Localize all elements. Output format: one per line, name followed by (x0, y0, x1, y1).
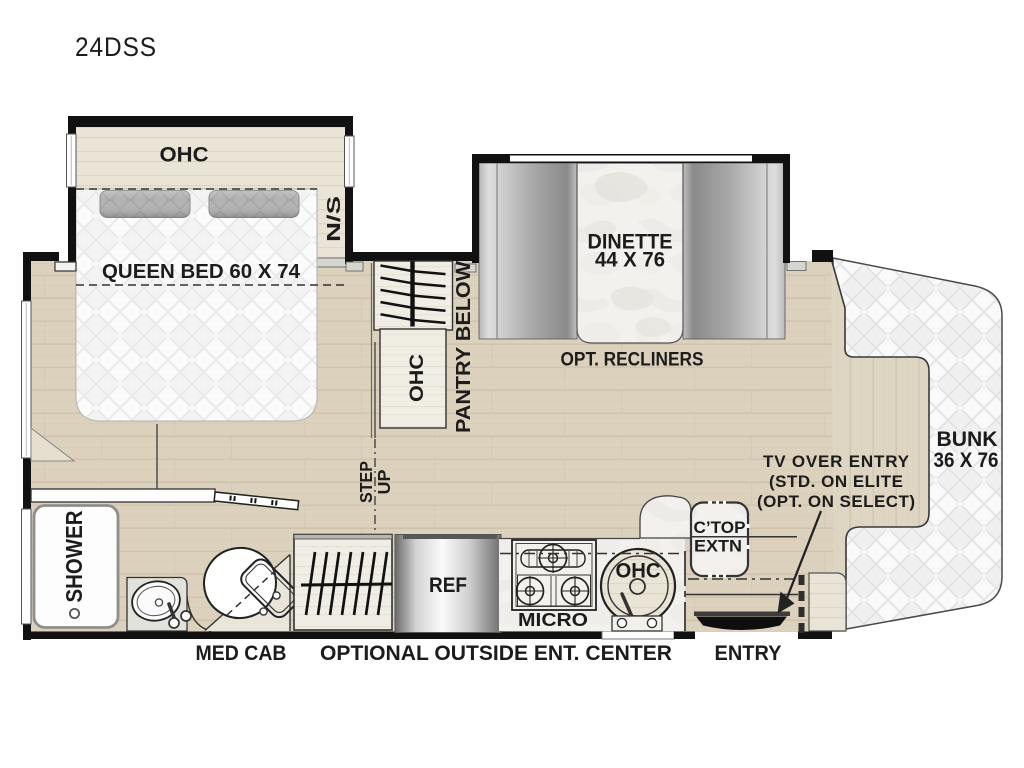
svg-text:BUNK: BUNK (937, 428, 998, 451)
svg-text:TV OVER ENTRY: TV OVER ENTRY (763, 452, 910, 471)
svg-text:N/S: N/S (324, 196, 344, 242)
svg-text:STEP: STEP (356, 461, 376, 503)
svg-text:OPTIONAL OUTSIDE ENT. CENTER: OPTIONAL OUTSIDE ENT. CENTER (320, 642, 672, 665)
svg-text:EXTN: EXTN (694, 537, 742, 556)
svg-text:QUEEN BED 60 X 74: QUEEN BED 60 X 74 (102, 261, 301, 283)
svg-text:REF: REF (429, 573, 467, 597)
svg-text:OHC: OHC (616, 560, 661, 583)
svg-text:C’TOP: C’TOP (694, 518, 746, 537)
svg-text:PANTRY BELOW: PANTRY BELOW (453, 261, 475, 433)
svg-text:(OPT. ON SELECT): (OPT. ON SELECT) (757, 492, 915, 511)
svg-text:44 X 76: 44 X 76 (595, 249, 665, 272)
svg-text:OHC: OHC (407, 354, 428, 402)
svg-text:MICRO: MICRO (518, 609, 588, 630)
svg-text:MED CAB: MED CAB (196, 642, 287, 665)
svg-text:OHC: OHC (160, 144, 209, 167)
svg-text:(STD. ON ELITE: (STD. ON ELITE (769, 472, 903, 491)
svg-text:UP: UP (374, 469, 394, 494)
svg-text:24DSS: 24DSS (75, 32, 157, 62)
svg-text:ENTRY: ENTRY (715, 642, 782, 665)
svg-text:OPT. RECLINERS: OPT. RECLINERS (561, 350, 704, 371)
svg-text:SHOWER: SHOWER (61, 510, 87, 602)
svg-text:36 X 76: 36 X 76 (934, 449, 999, 472)
